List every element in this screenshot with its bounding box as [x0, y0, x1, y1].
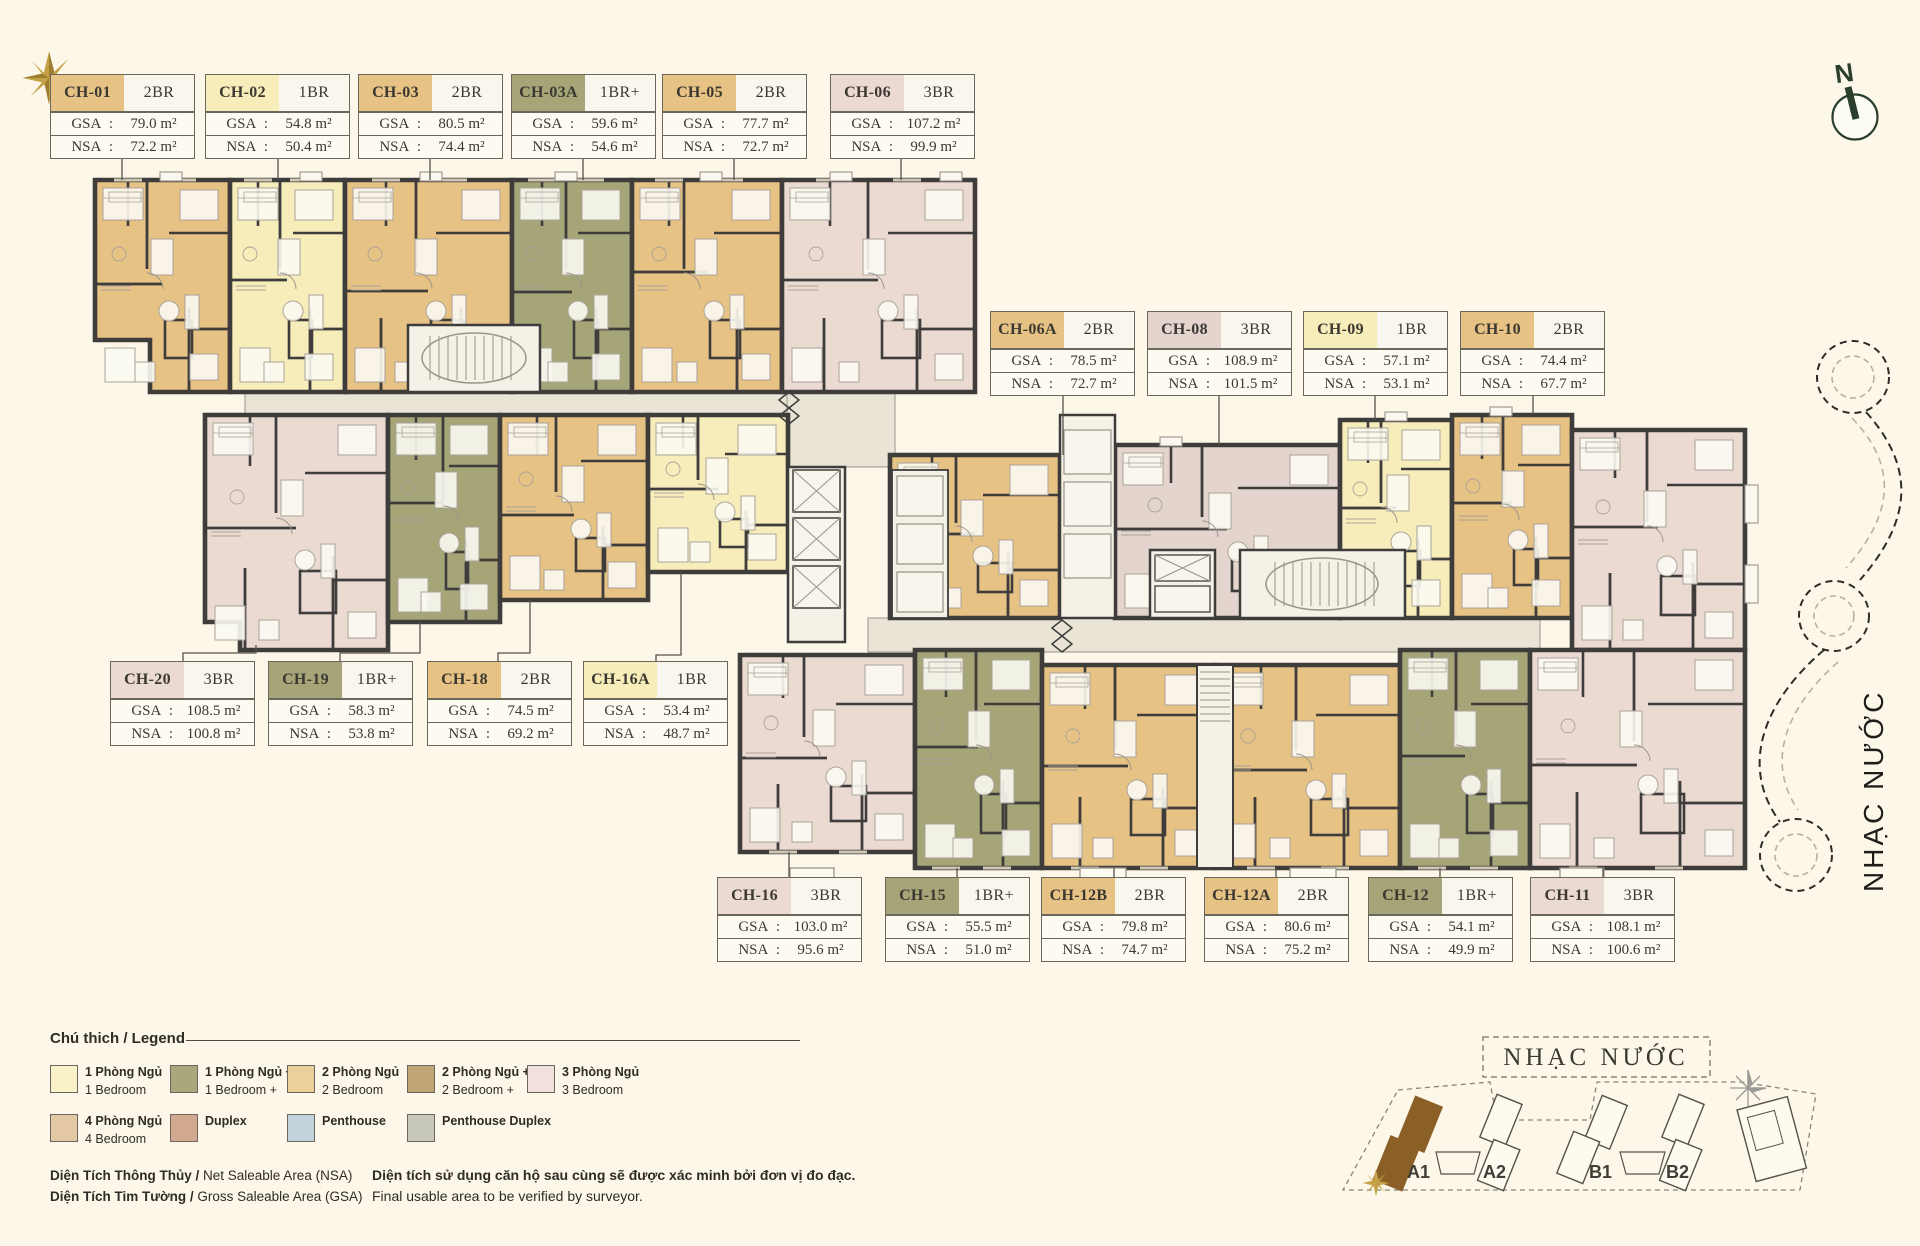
- svg-text:A2: A2: [1483, 1162, 1506, 1182]
- svg-text:A1: A1: [1407, 1162, 1430, 1182]
- svg-text:B1: B1: [1589, 1162, 1612, 1182]
- svg-text:B2: B2: [1666, 1162, 1689, 1182]
- svg-text:NHẠC NƯỚC: NHẠC NƯỚC: [1503, 1043, 1688, 1071]
